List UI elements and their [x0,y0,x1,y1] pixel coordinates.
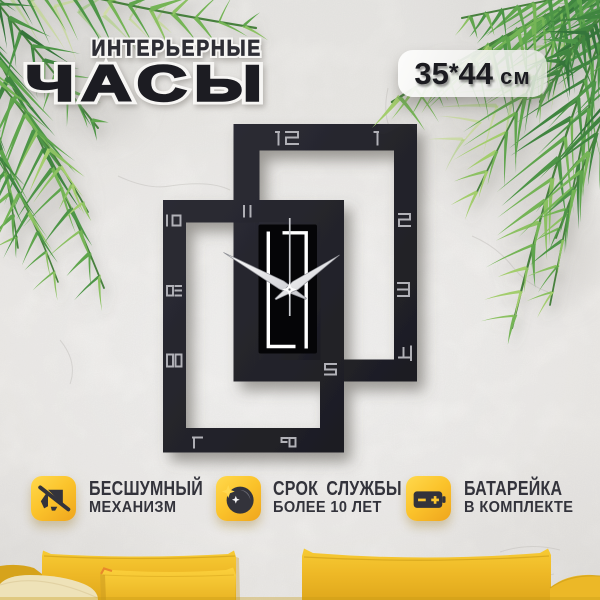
svg-text:ЧАСЫ: ЧАСЫ [25,55,269,111]
